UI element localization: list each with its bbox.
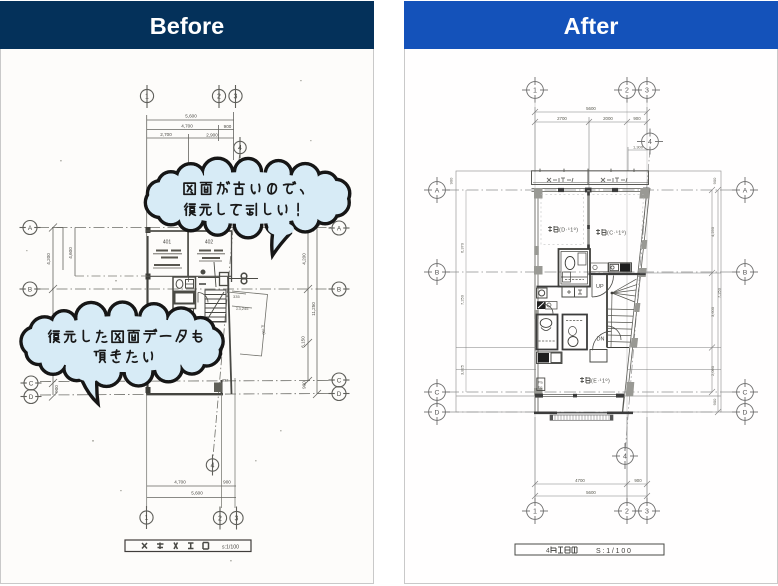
svg-text:3,825: 3,825 [460,364,465,375]
svg-text:UP: UP [596,284,604,290]
svg-text:1: 1 [145,515,149,522]
svg-text:B: B [743,269,748,276]
svg-text:1: 1 [533,506,537,515]
svg-text:4,200: 4,200 [46,253,51,265]
svg-text:4: 4 [546,548,550,555]
svg-text:(E·¹1º): (E·¹1º) [591,379,610,385]
svg-text:A: A [28,225,33,232]
svg-text:900: 900 [712,177,717,184]
svg-text:401: 401 [163,240,172,246]
svg-text:3: 3 [645,508,649,515]
svg-text:4,250: 4,250 [710,226,715,237]
svg-text:900: 900 [633,116,641,121]
svg-text:5600: 5600 [586,106,596,111]
svg-text:S:1/100: S:1/100 [596,548,633,555]
svg-text:7,250: 7,250 [717,287,722,298]
svg-text:900: 900 [634,478,642,483]
svg-text:2: 2 [625,508,629,515]
svg-text:D: D [29,394,34,401]
svg-text:4: 4 [648,139,652,146]
svg-text:4,750: 4,750 [260,324,267,335]
svg-text:Pa: Pa [538,381,544,385]
svg-text:2,900: 2,900 [206,132,218,137]
svg-text:335: 335 [233,294,240,299]
svg-text:5,600: 5,600 [191,491,203,496]
svg-text:3,600: 3,600 [710,306,715,317]
svg-text:900: 900 [223,480,231,485]
svg-text:1: 1 [145,94,149,101]
svg-text:B: B [435,269,440,276]
svg-text:A: A [743,187,748,194]
svg-text:3: 3 [234,94,238,101]
svg-text:4,200: 4,200 [302,253,307,265]
svg-text:900: 900 [224,124,232,129]
svg-text:4: 4 [211,463,215,470]
svg-text:D: D [337,391,342,398]
svg-text:C: C [435,389,440,396]
svg-text:3: 3 [645,87,649,94]
svg-text:6,150: 6,150 [301,336,306,348]
svg-text:4,700: 4,700 [174,480,186,485]
svg-text:11,250: 11,250 [311,302,316,316]
svg-text:900: 900 [302,381,307,389]
svg-text:5,600: 5,600 [185,114,197,119]
svg-text:1,300: 1,300 [633,145,644,150]
svg-text:402: 402 [205,240,214,246]
svg-text:s:1/100: s:1/100 [222,545,239,551]
svg-text:6,370: 6,370 [460,242,465,253]
svg-text:3: 3 [235,516,239,523]
svg-text:A: A [435,187,440,194]
svg-text:900: 900 [712,398,717,405]
svg-text:D: D [743,409,748,416]
svg-text:4700: 4700 [575,478,585,483]
svg-text:4,600: 4,600 [68,247,73,259]
svg-text:(D·¹1º): (D·¹1º) [559,228,579,234]
svg-text:2,060: 2,060 [710,365,715,376]
svg-text:Fe: Fe [538,386,542,390]
svg-text:2000: 2000 [603,116,613,121]
svg-text:A: A [337,226,342,233]
svg-text:852: 852 [222,379,228,383]
svg-text:900: 900 [449,177,454,184]
svg-text:5600: 5600 [586,490,596,495]
svg-text:2: 2 [218,516,222,523]
svg-text:C: C [337,378,342,385]
svg-text:900: 900 [54,385,59,393]
svg-text:C: C [743,389,748,396]
svg-text:4: 4 [238,145,242,152]
svg-text:(C·¹1º): (C·¹1º) [607,231,627,237]
svg-text:2,700: 2,700 [160,132,172,137]
svg-text:2700: 2700 [557,116,567,121]
svg-text:B: B [337,287,341,294]
svg-text:1: 1 [533,85,537,94]
svg-text:2: 2 [625,87,629,94]
svg-text:B: B [28,287,32,294]
svg-text:4: 4 [623,453,627,460]
svg-text:D: D [435,409,440,416]
svg-text:2: 2 [217,94,221,101]
svg-text:4,700: 4,700 [181,124,193,129]
svg-text:C: C [29,381,34,388]
svg-text:7,250: 7,250 [460,294,465,305]
